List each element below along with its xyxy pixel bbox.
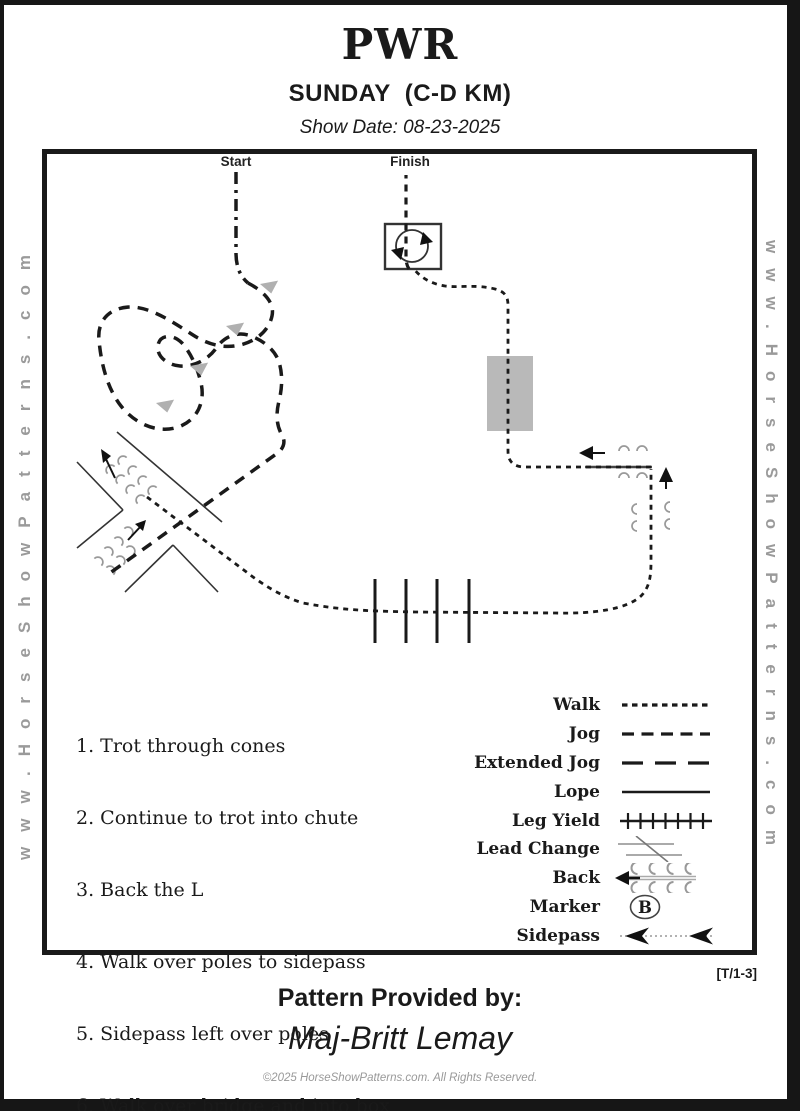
start-label: Start — [221, 154, 252, 169]
instruction-item: 2. Continue to trot into chute — [76, 806, 504, 830]
legend-row-extended-jog: Extended Jog — [470, 749, 734, 778]
legend-label: Extended Jog — [470, 753, 600, 773]
extended-jog-line-icon — [612, 750, 724, 776]
bridge-obstacle — [487, 356, 533, 431]
jog-line-icon — [612, 721, 724, 747]
class-subtitle: SUNDAY (C-D KM) — [0, 80, 800, 108]
pattern-ref-code: [T/1-3] — [717, 966, 758, 981]
cones — [155, 277, 279, 413]
cone-icon — [259, 277, 279, 294]
legend-label: Sidepass — [470, 926, 600, 946]
marker-icon: B — [612, 893, 724, 921]
back-icon — [612, 863, 724, 893]
legend-label: Marker — [470, 897, 600, 917]
back-hoofprints-upper — [104, 454, 157, 504]
legend-row-leg-yield: Leg Yield — [470, 806, 734, 835]
provided-by-label: Pattern Provided by: — [0, 984, 800, 1013]
lope-line-icon — [612, 779, 724, 805]
instruction-item: 3. Back the L — [76, 878, 504, 902]
legend-row-lope: Lope — [470, 777, 734, 806]
instruction-item: 4. Walk over poles to sidepass — [76, 950, 504, 974]
page-title: PWR — [0, 20, 800, 69]
legend-label: Lope — [470, 782, 600, 802]
sidepass-hoofprints-horizontal — [619, 446, 647, 478]
legend-row-walk: Walk — [470, 691, 734, 720]
pattern-sheet: www.HorseShowPatterns.com www.HorseShowP… — [0, 0, 800, 1111]
legend: Walk Jog Extended Jog Lope Leg Yield — [470, 691, 734, 950]
legend-row-jog: Jog — [470, 720, 734, 749]
sidepass-icon — [612, 923, 724, 949]
legend-row-sidepass: Sidepass — [470, 921, 734, 950]
legend-label: Leg Yield — [470, 811, 600, 831]
copyright-text: ©2025 HorseShowPatterns.com. All Rights … — [0, 1072, 800, 1084]
marker-letter: B — [638, 898, 652, 917]
instruction-item: 1. Trot through cones — [76, 734, 504, 758]
legend-label: Walk — [470, 695, 600, 715]
finish-label: Finish — [390, 154, 430, 169]
page-edge-top — [0, 0, 800, 5]
legend-label: Lead Change — [470, 839, 600, 859]
watermark-left: www.HorseShowPatterns.com — [15, 100, 37, 1000]
page-edge-left — [0, 0, 4, 1111]
back-l-chute-rails — [77, 432, 222, 592]
page-edge-right — [787, 0, 800, 1111]
turn-box — [385, 224, 441, 269]
instruction-item: 6. Walk over bridge and into box — [76, 1094, 504, 1111]
legend-label: Back — [470, 868, 600, 888]
walk-line-icon — [612, 692, 724, 718]
provider-name: Maj-Britt Lemay — [0, 1020, 800, 1057]
show-date: Show Date: 08-23-2025 — [0, 117, 800, 139]
legend-row-back: Back — [470, 864, 734, 893]
start-jog-line — [236, 172, 248, 283]
legend-row-lead-change: Lead Change — [470, 835, 734, 864]
legend-row-marker: Marker B — [470, 893, 734, 922]
watermark-right: www.HorseShowPatterns.com — [759, 100, 781, 1000]
lead-change-icon — [612, 836, 724, 862]
legend-label: Jog — [470, 724, 600, 744]
cone-icon — [155, 396, 175, 413]
leg-yield-icon — [612, 808, 724, 834]
